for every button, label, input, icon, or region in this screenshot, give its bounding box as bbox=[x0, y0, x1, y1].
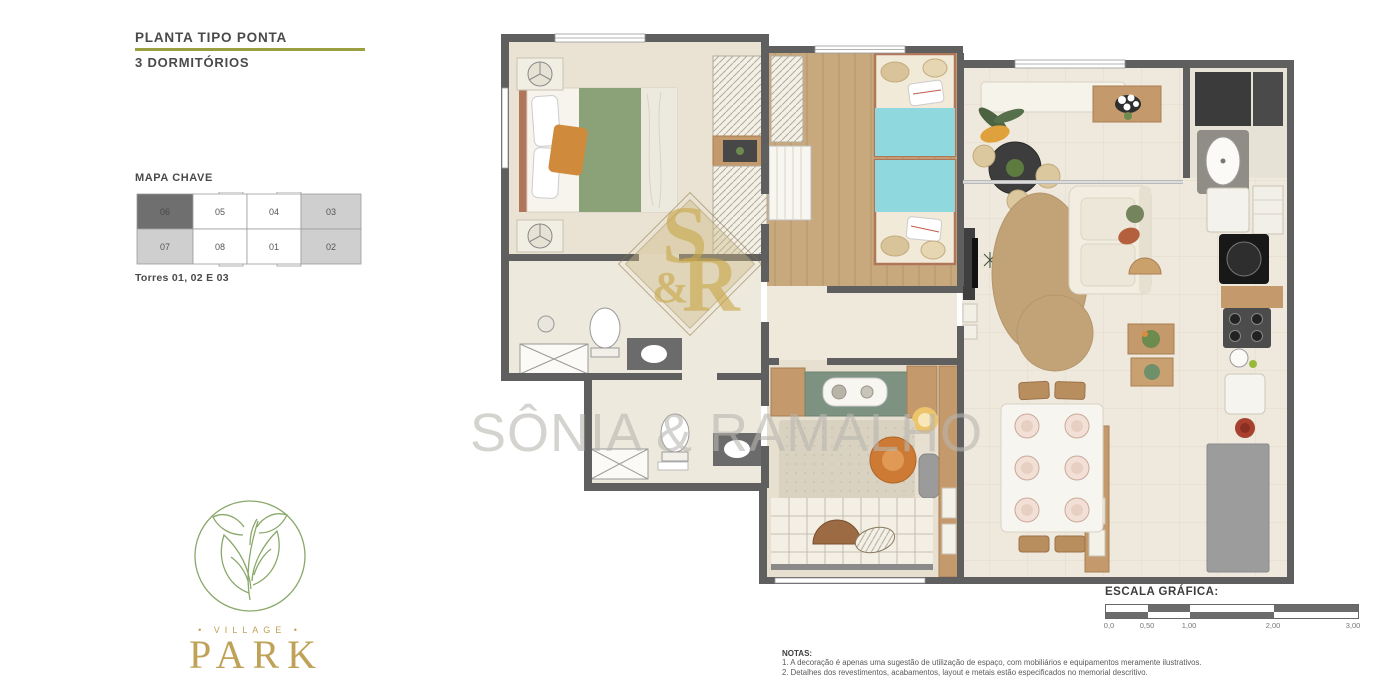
unit-label: 03 bbox=[326, 207, 336, 217]
bath-shelf bbox=[658, 462, 688, 470]
unit-label: 08 bbox=[215, 242, 225, 252]
title-block: PLANTA TIPO PONTA 3 DORMITÓRIOS bbox=[135, 30, 365, 70]
unit-label: 02 bbox=[326, 242, 336, 252]
media-unit bbox=[963, 304, 977, 322]
vanity-sink bbox=[641, 345, 667, 363]
scale-tick: 1,00 bbox=[1182, 621, 1197, 630]
burner bbox=[1230, 331, 1241, 342]
flower-leaves bbox=[1124, 112, 1132, 120]
wall-lamp-glow bbox=[918, 413, 932, 427]
bed-drape bbox=[641, 88, 677, 212]
dresser bbox=[769, 146, 811, 220]
chair bbox=[973, 145, 995, 167]
graphic-scale: ESCALA GRÁFICA: 0,0 0,50 1,00 2,00 3,00 bbox=[1105, 586, 1361, 632]
keymap-block: MAPA CHAVE 06 05 04 03 07 bbox=[135, 172, 367, 284]
unit-label: 04 bbox=[269, 207, 279, 217]
burner bbox=[1230, 314, 1241, 325]
unit-label: 01 bbox=[269, 242, 279, 252]
kitchen-sink bbox=[1230, 349, 1248, 367]
toilet bbox=[590, 308, 620, 348]
scale-tick: 0,0 bbox=[1104, 621, 1114, 630]
unit-label: 07 bbox=[160, 242, 170, 252]
burner bbox=[1252, 331, 1263, 342]
dining-chair bbox=[1055, 536, 1085, 552]
media-unit bbox=[963, 325, 977, 339]
throw-pillow bbox=[1126, 205, 1144, 223]
notes-block: NOTAS: 1. A decoração é apenas uma suges… bbox=[782, 649, 1362, 678]
title-accent-rule bbox=[135, 48, 365, 51]
dining-chair bbox=[1055, 381, 1086, 399]
glass-door-line bbox=[963, 182, 1183, 183]
wardrobe-upper bbox=[713, 56, 767, 136]
tub-drain bbox=[1221, 159, 1226, 164]
desk-item bbox=[861, 386, 873, 398]
notes-heading: NOTAS: bbox=[782, 649, 1362, 658]
scale-tick: 3,00 bbox=[1346, 621, 1361, 630]
wardrobe-lower bbox=[713, 166, 767, 258]
rattan-chair-cushion bbox=[882, 449, 904, 471]
table-plant bbox=[1006, 159, 1024, 177]
toilet bbox=[661, 414, 689, 452]
flower bbox=[1118, 96, 1126, 104]
pedestal-sink bbox=[538, 316, 554, 332]
cyan-blanket bbox=[875, 160, 955, 212]
note-line-1: 1. A decoração é apenas uma sugestão de … bbox=[782, 658, 1362, 668]
scale-label: ESCALA GRÁFICA: bbox=[1105, 586, 1361, 598]
cushion bbox=[923, 59, 947, 77]
note-line-2: 2. Detalhes dos revestimentos, acabament… bbox=[782, 668, 1362, 678]
toilet-tank bbox=[591, 348, 619, 357]
cushion bbox=[881, 236, 909, 256]
fridge bbox=[1207, 188, 1249, 232]
unit-label: 05 bbox=[215, 207, 225, 217]
counter-wood bbox=[1221, 286, 1283, 308]
scale-ticks: 0,0 0,50 1,00 2,00 3,00 bbox=[1105, 621, 1357, 632]
buffet-panel bbox=[1089, 530, 1105, 556]
vanity-sink bbox=[724, 440, 750, 458]
cooktop bbox=[1223, 308, 1271, 348]
unit-label: 06 bbox=[160, 207, 170, 217]
oven-door bbox=[1227, 242, 1261, 276]
plant-pot bbox=[736, 147, 744, 155]
burner bbox=[1252, 314, 1263, 325]
washer bbox=[1195, 72, 1251, 126]
ottoman bbox=[919, 454, 939, 498]
laundry-cabinet bbox=[1253, 72, 1283, 126]
closet-rack bbox=[771, 56, 803, 142]
wardrobe-door bbox=[942, 488, 956, 518]
brand-logo: • VILLAGE • PARK bbox=[183, 497, 317, 675]
page-title: PLANTA TIPO PONTA bbox=[135, 30, 365, 45]
fruit bbox=[1142, 331, 1148, 337]
floorplan-page: PLANTA TIPO PONTA 3 DORMITÓRIOS MAPA CHA… bbox=[0, 0, 1400, 682]
bed-headboard bbox=[519, 88, 527, 212]
flower bbox=[1124, 104, 1131, 111]
cushion bbox=[921, 241, 945, 259]
chair bbox=[1036, 164, 1060, 188]
green-blanket bbox=[579, 88, 641, 212]
scale-row-bottom bbox=[1106, 612, 1358, 619]
dining-chair bbox=[1019, 381, 1050, 400]
lime-decor bbox=[1249, 360, 1257, 368]
desk-item bbox=[832, 385, 846, 399]
bedroom3-furniture bbox=[771, 366, 959, 577]
wood-panel bbox=[771, 368, 805, 416]
kitchen-island bbox=[1207, 444, 1269, 572]
page-subtitle: 3 DORMITÓRIOS bbox=[135, 55, 365, 70]
sofa-backrest bbox=[1139, 186, 1151, 294]
logo-park-word: PARK bbox=[189, 635, 317, 675]
flower bbox=[1133, 101, 1139, 107]
wardrobe-door bbox=[942, 524, 956, 554]
scale-bar bbox=[1105, 604, 1359, 619]
kitchen-shelf bbox=[1253, 186, 1283, 234]
scale-tick: 2,00 bbox=[1266, 621, 1281, 630]
keymap-label: MAPA CHAVE bbox=[135, 172, 367, 184]
round-rug-extension bbox=[1017, 295, 1093, 371]
sofa-cushion bbox=[1081, 244, 1135, 286]
cutting-board bbox=[1225, 374, 1265, 414]
bed-tray bbox=[548, 124, 588, 176]
hall-floor bbox=[767, 286, 957, 360]
keymap-caption: Torres 01, 02 E 03 bbox=[135, 272, 367, 284]
cyan-blanket bbox=[875, 108, 955, 156]
pillow bbox=[908, 80, 945, 107]
red-plate-center bbox=[1240, 423, 1250, 433]
keymap-diagram: 06 05 04 03 07 08 01 02 bbox=[135, 192, 365, 268]
plant-bowl bbox=[1144, 364, 1160, 380]
flower bbox=[1128, 95, 1135, 102]
toilet-tank bbox=[662, 452, 688, 461]
scale-tick: 0,50 bbox=[1140, 621, 1155, 630]
cushion bbox=[881, 62, 909, 82]
tv bbox=[972, 238, 978, 288]
dining-chair bbox=[1019, 536, 1049, 552]
floorplan-drawing bbox=[495, 28, 1295, 588]
logo-leaf-icon bbox=[191, 497, 309, 615]
